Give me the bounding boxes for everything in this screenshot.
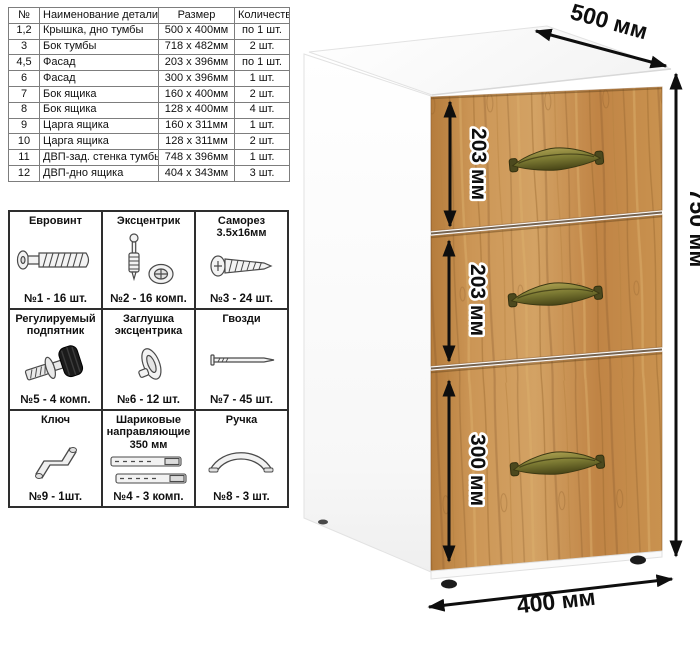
dimension-drawer2-label: 203 мм xyxy=(466,264,489,336)
dimension-height: 750 мм xyxy=(676,74,700,556)
cabinet-illustration: 500 мм 750 мм 400 мм 203 мм 203 мм 300 м… xyxy=(0,0,700,648)
cabinet-side-panel xyxy=(304,54,431,572)
dimension-drawer3-label: 300 мм xyxy=(466,434,489,506)
cabinet-foot xyxy=(318,520,328,525)
dimension-height-label: 750 мм xyxy=(685,189,700,268)
cabinet-foot xyxy=(630,556,646,565)
dimension-drawer1-label: 203 мм xyxy=(467,128,490,200)
dimension-width: 400 мм xyxy=(429,579,672,618)
dimension-width-label: 400 мм xyxy=(515,584,596,619)
cabinet-foot xyxy=(441,580,457,589)
